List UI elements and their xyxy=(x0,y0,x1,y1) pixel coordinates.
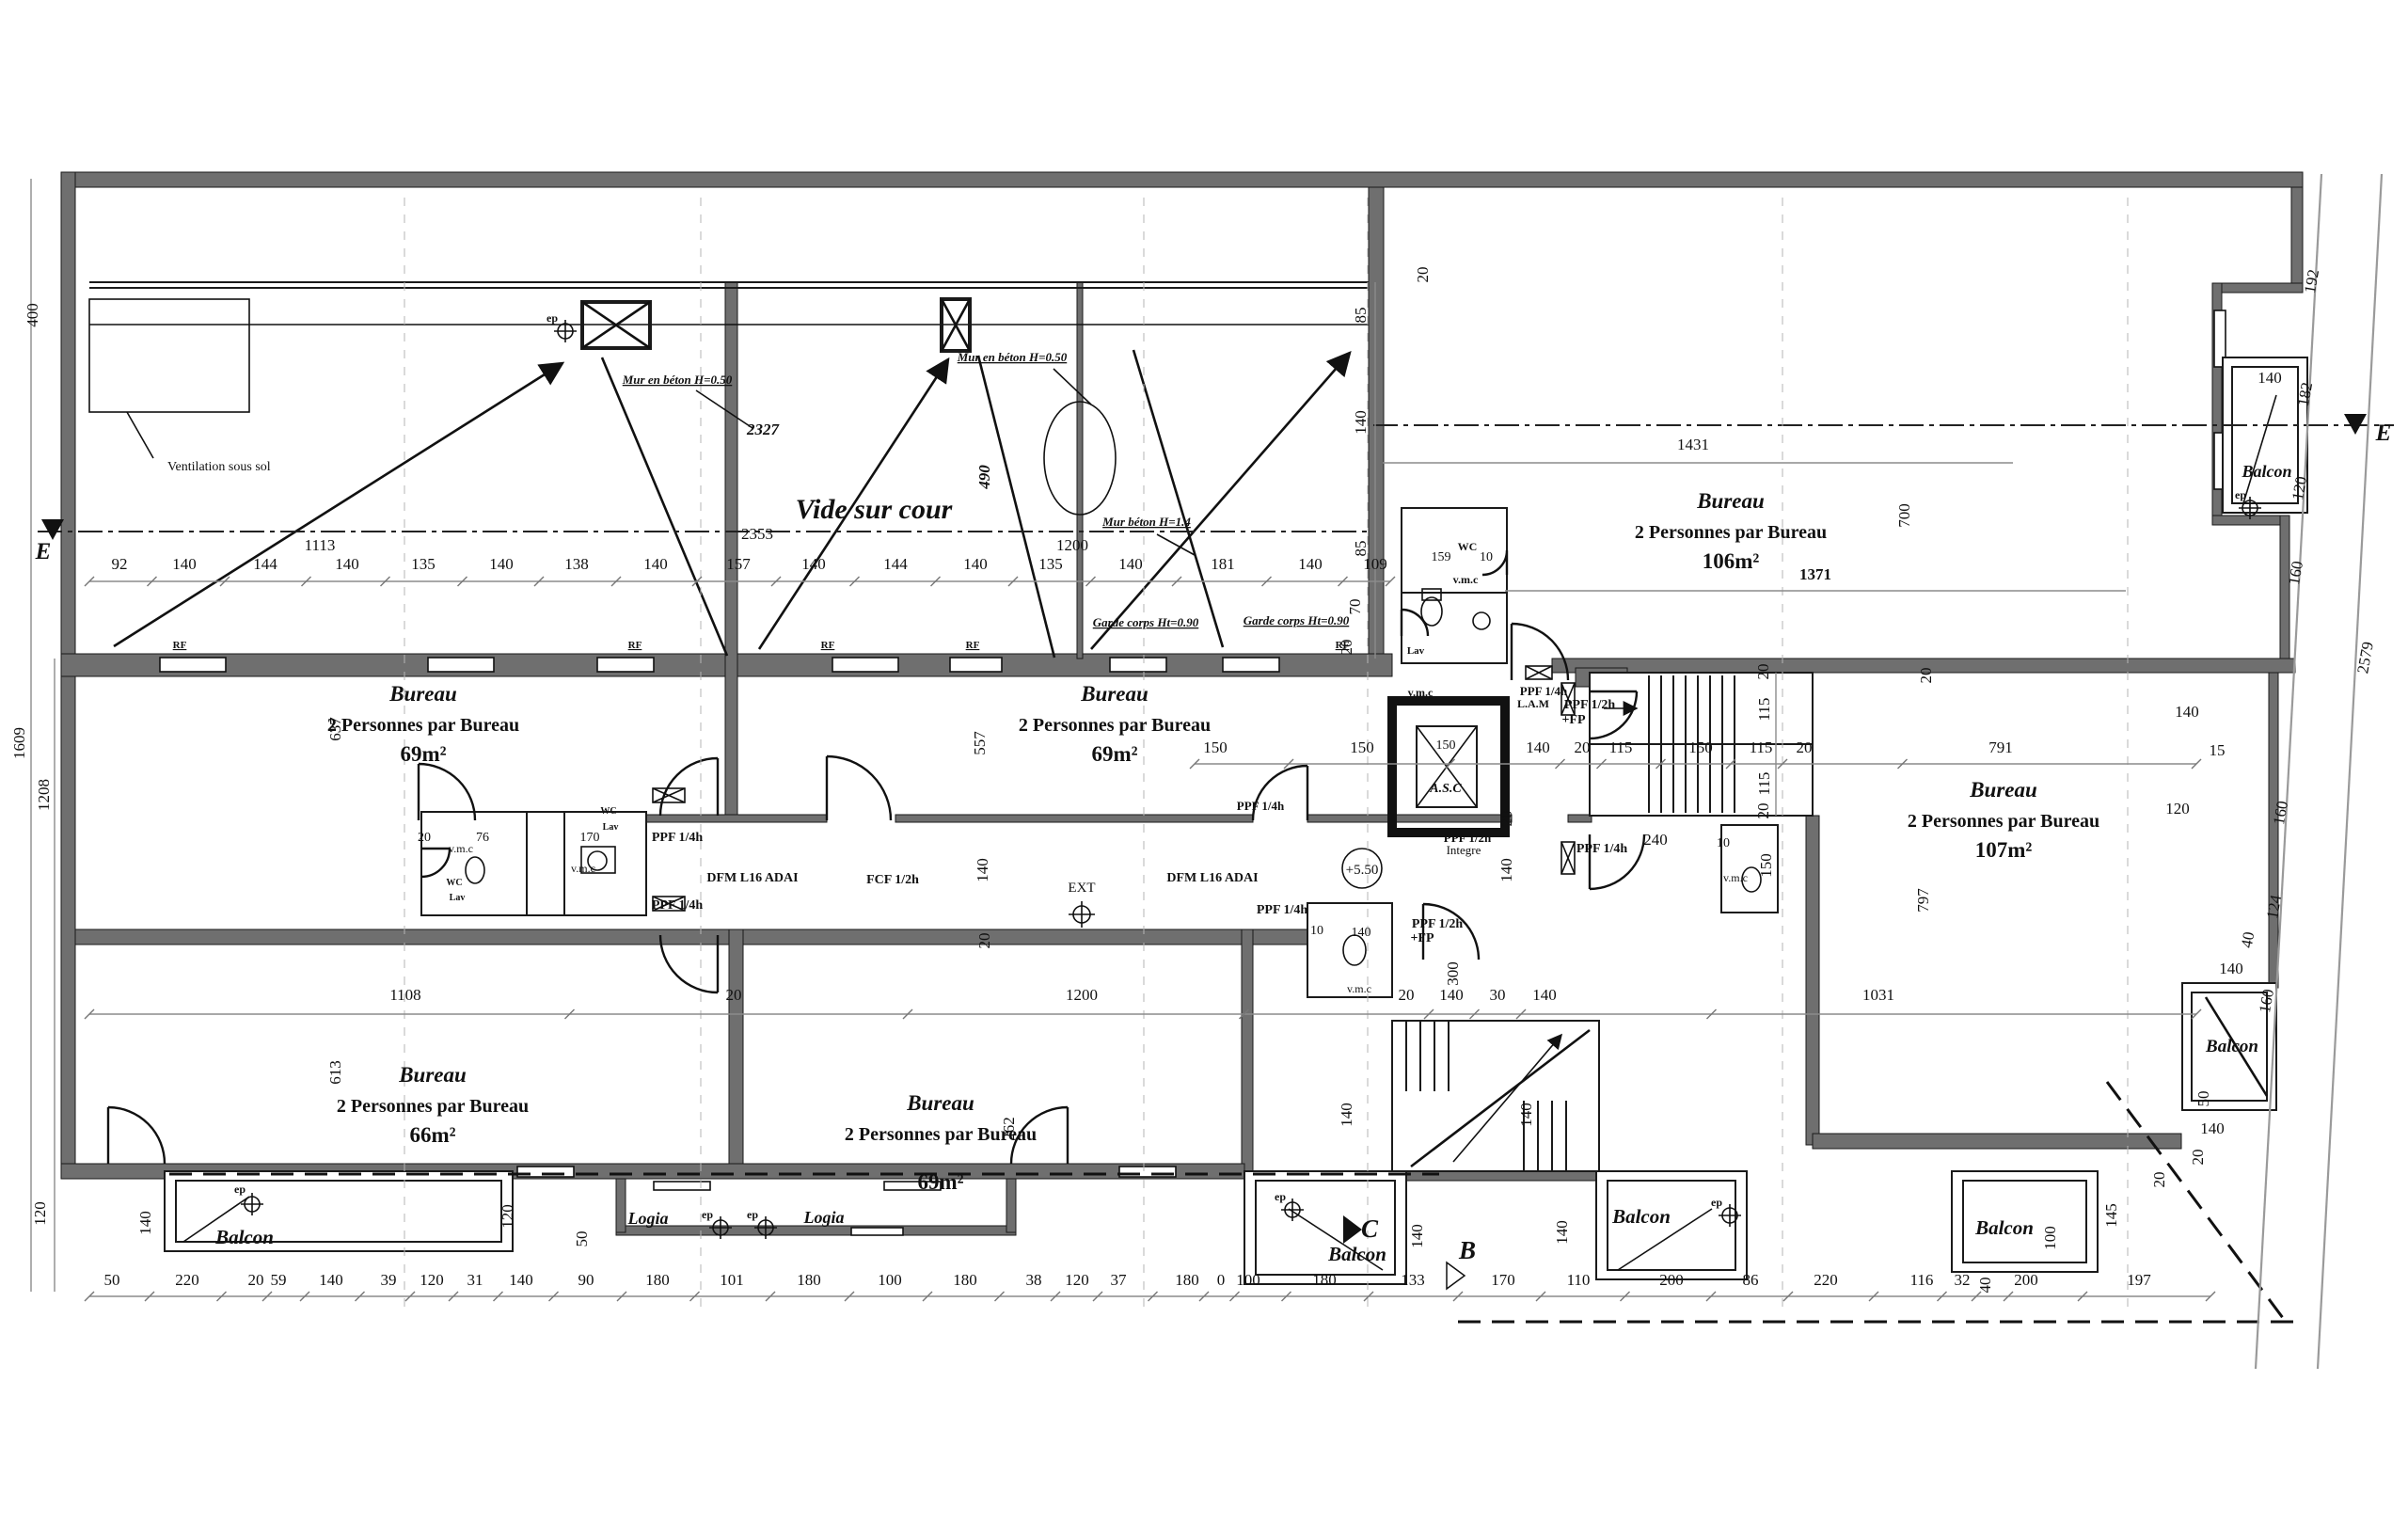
annotation: PPF 1/2h xyxy=(1412,917,1464,931)
dim-value: 700 xyxy=(1895,503,1913,528)
dim-value: 76 xyxy=(476,831,489,845)
annotation: RF xyxy=(966,640,980,651)
dim-value: 140 xyxy=(335,555,359,573)
dim-value: 92 xyxy=(112,555,128,573)
annotation: Lav xyxy=(603,822,619,833)
annotation: E xyxy=(2375,421,2392,446)
dim-value: 133 xyxy=(1401,1271,1425,1289)
dim-value: 159 xyxy=(1432,550,1451,564)
annotation: Mur béton H=1.4 xyxy=(1101,515,1191,529)
annotation: v.m.c xyxy=(449,842,473,855)
annotation: ep xyxy=(1275,1190,1286,1203)
dim-value: 140 xyxy=(963,555,988,573)
bureau-bottom-left-label: 2 Personnes par Bureau xyxy=(337,1096,529,1117)
dim-value: 10 xyxy=(1480,550,1493,564)
top-window-chain: 9214014414013514013814015714014414013514… xyxy=(85,555,1395,586)
annotation: WC xyxy=(1458,540,1478,553)
annotation: Balcon xyxy=(1974,1216,2034,1239)
dim-value: 144 xyxy=(883,555,908,573)
dim-value: 85 xyxy=(1352,541,1370,557)
dim-value: 31 xyxy=(467,1271,483,1289)
dim-value: 240 xyxy=(1643,831,1668,849)
dim-value: 39 xyxy=(381,1271,397,1289)
dim-value: 140 xyxy=(509,1271,533,1289)
dim-value: 20 xyxy=(726,986,742,1004)
dim-value: 400 xyxy=(24,303,41,327)
bureau-top-left-label: 2 Personnes par Bureau xyxy=(327,715,519,736)
dim-value: 100 xyxy=(2041,1226,2059,1250)
dim-value: 1371 xyxy=(1799,565,1831,583)
dim-value: 150 xyxy=(1350,738,1374,756)
dim-value: 120 xyxy=(2165,800,2190,818)
dim-value: 791 xyxy=(1988,738,2013,756)
dim-value: 150 xyxy=(1688,738,1713,756)
annotation: C xyxy=(1361,1215,1379,1243)
dim-value: 70 xyxy=(1346,599,1364,615)
annotation: Integre xyxy=(1447,843,1481,857)
annotation: ep xyxy=(2235,488,2246,501)
annotation: Balcon xyxy=(1327,1243,1386,1265)
dim-value: 140 xyxy=(801,555,826,573)
dim-value: 140 xyxy=(2200,1119,2225,1137)
annotation: E xyxy=(35,539,52,564)
annotation: Logia xyxy=(803,1208,845,1227)
dim-value: 120 xyxy=(420,1271,444,1289)
dim-value: 20 xyxy=(248,1271,264,1289)
dim-value: 115 xyxy=(1755,772,1773,796)
dim-value: 32 xyxy=(1955,1271,1971,1289)
annotation: DFM L16 ADAI xyxy=(706,871,798,885)
bureau-top-right-label: Bureau xyxy=(1696,489,1765,513)
annotation: L.A.M xyxy=(1517,697,1549,710)
annotation: PPF 1/2h xyxy=(1564,698,1616,712)
dim-value: 135 xyxy=(1038,555,1063,573)
dim-value: 50 xyxy=(573,1231,591,1247)
staircase-lower xyxy=(1392,1021,1599,1171)
bureau-top-left: Bureau2 Personnes par Bureau69m² xyxy=(327,682,519,766)
dim-value: 37 xyxy=(1111,1271,1128,1289)
dim-value: 160 xyxy=(2285,560,2306,586)
dim-value: 182 xyxy=(2294,381,2316,407)
bureau-bottom-left-label: Bureau xyxy=(398,1063,467,1087)
bureau-bottom-left: Bureau2 Personnes par Bureau66m² xyxy=(337,1063,529,1147)
annotation: +FP xyxy=(1561,713,1586,727)
dim-value: 490 xyxy=(975,465,993,490)
annotation: v.m.c xyxy=(1453,573,1479,586)
dim-value: 86 xyxy=(1743,1271,1759,1289)
dim-value: 10 xyxy=(1717,836,1730,850)
dim-value: 1031 xyxy=(1862,986,1894,1004)
bureau-bottom-mid-label: 69m² xyxy=(917,1170,963,1194)
annotation: Lav xyxy=(450,893,466,903)
annotation: Balcon xyxy=(214,1226,274,1248)
dim-value: 157 xyxy=(726,555,751,573)
dim-value: 140 xyxy=(1497,858,1515,882)
annotation: PPF 1/4h xyxy=(1576,842,1628,856)
dim-value: 40 xyxy=(1976,1278,1994,1294)
annotation: ep xyxy=(234,1183,246,1196)
dim-value: 2353 xyxy=(741,525,773,543)
dim-value: 30 xyxy=(1490,986,1506,1004)
bureau-right-label: 2 Personnes par Bureau xyxy=(1908,811,2099,832)
annotation: +FP xyxy=(1410,931,1434,945)
bureau-right-label: 107m² xyxy=(1975,838,2033,862)
dim-value: 10 xyxy=(1310,924,1323,938)
dim-value: 110 xyxy=(1567,1271,1591,1289)
annotation: Garde corps Ht=0.90 xyxy=(1244,613,1350,627)
annotation: Balcon xyxy=(2205,1037,2258,1056)
dim-value: 15 xyxy=(2210,741,2226,759)
dim-value: 181 xyxy=(1211,555,1235,573)
dim-value: 20 xyxy=(2150,1172,2168,1188)
dim-value: 150 xyxy=(1757,853,1775,878)
dim-value: 109 xyxy=(1363,555,1387,573)
annotation: Garde corps Ht=0.90 xyxy=(1093,615,1199,629)
annotation: Lav xyxy=(1407,645,1425,657)
bureau-top-middle-label: 2 Personnes par Bureau xyxy=(1019,715,1211,736)
dim-value: 180 xyxy=(1312,1271,1337,1289)
dim-value: 135 xyxy=(411,555,436,573)
annotation: +5.50 xyxy=(1346,863,1379,878)
dim-value: 20 xyxy=(418,831,431,845)
bureau-top-left-label: Bureau xyxy=(388,682,457,706)
annotation: Logia xyxy=(627,1209,669,1228)
annotation: RF xyxy=(821,640,835,651)
annotation: FCF 1/2h xyxy=(866,873,919,887)
bureau-top-middle-label: Bureau xyxy=(1080,682,1149,706)
annotation-labels: Ventilation sous solVide sur courMur en … xyxy=(35,311,2392,1265)
dim-value: 20 xyxy=(1497,811,1515,827)
annotation: WC xyxy=(600,806,616,817)
dim-value: 20 xyxy=(1399,986,1415,1004)
dim-value: 100 xyxy=(878,1271,902,1289)
annotation: Mur en béton H=0.50 xyxy=(957,350,1068,364)
bureau-right-label: Bureau xyxy=(1969,778,2037,802)
dim-value: 613 xyxy=(326,1060,344,1085)
annotation: DFM L16 ADAI xyxy=(1166,871,1258,885)
balcony-c xyxy=(1244,1171,1406,1284)
floor-plan-page: 9214014414013514013814015714014414013514… xyxy=(0,0,2408,1540)
dim-value: 1113 xyxy=(305,536,336,554)
dim-value: 1609 xyxy=(10,727,28,759)
dim-value: 20 xyxy=(2189,1150,2207,1166)
dim-value: 797 xyxy=(1914,888,1932,913)
dim-value: 0 xyxy=(1217,1271,1226,1289)
dim-value: 2327 xyxy=(746,421,781,438)
dim-value: 145 xyxy=(2102,1203,2120,1228)
dim-value: 140 xyxy=(489,555,514,573)
dim-value: 200 xyxy=(2014,1271,2038,1289)
bureau-top-right-label: 106m² xyxy=(1703,549,1760,573)
floor-plan-drawing: 9214014414013514013814015714014414013514… xyxy=(0,0,2408,1540)
annotation: RF xyxy=(628,640,642,651)
dim-value: 140 xyxy=(1338,1103,1355,1127)
dim-value: 116 xyxy=(1910,1271,1934,1289)
dim-value: 138 xyxy=(564,555,589,573)
dim-value: 1431 xyxy=(1677,436,1709,453)
dim-value: 140 xyxy=(1526,738,1550,756)
dim-value: 140 xyxy=(1408,1224,1426,1248)
bureau-top-middle-label: 69m² xyxy=(1091,742,1137,766)
annotation: RF xyxy=(173,640,187,651)
dim-value: 140 xyxy=(1517,1103,1535,1127)
axis-marker-e-left xyxy=(41,519,64,540)
dim-value: 120 xyxy=(1065,1271,1089,1289)
annotation: Balcon xyxy=(1611,1205,1671,1228)
dim-value: 59 xyxy=(271,1271,287,1289)
dim-value: 1200 xyxy=(1066,986,1098,1004)
dim-value: 140 xyxy=(172,555,197,573)
dim-value: 140 xyxy=(2175,703,2199,721)
dim-value: 38 xyxy=(1026,1271,1042,1289)
annotation: v.m.c xyxy=(571,862,595,875)
dim-value: 20 xyxy=(1797,738,1813,756)
dim-value: 140 xyxy=(1532,986,1557,1004)
dim-value: 150 xyxy=(1203,738,1228,756)
bureau-top-right: Bureau2 Personnes par Bureau106m² xyxy=(1635,489,1827,573)
dim-value: 115 xyxy=(1755,698,1773,722)
bureau-bottom-mid-label: 2 Personnes par Bureau xyxy=(845,1124,1037,1145)
bureau-top-right-label: 2 Personnes par Bureau xyxy=(1635,522,1827,543)
dim-value: 101 xyxy=(720,1271,744,1289)
dim-value: 140 xyxy=(1553,1220,1571,1245)
dim-value: 220 xyxy=(175,1271,199,1289)
bureau-top-left-label: 69m² xyxy=(400,742,446,766)
dim-value: 180 xyxy=(797,1271,821,1289)
dim-value: 20 xyxy=(1575,738,1591,756)
bureau-bottom-left-label: 66m² xyxy=(409,1123,455,1147)
bureau-bottom-mid-label: Bureau xyxy=(906,1091,974,1115)
dim-value: 20 xyxy=(975,933,993,949)
dim-value: 140 xyxy=(1352,410,1370,435)
dim-value: 160 xyxy=(2270,800,2291,826)
dim-value: 20 xyxy=(1917,668,1935,684)
dim-value: 50 xyxy=(2194,1091,2212,1107)
axis-lines xyxy=(38,414,2394,1289)
bureau-top-middle: Bureau2 Personnes par Bureau69m² xyxy=(1019,682,1211,766)
dim-value: 20 xyxy=(1414,267,1432,283)
dim-value: 124 xyxy=(2263,893,2285,920)
dim-value: 170 xyxy=(1491,1271,1515,1289)
annotation: Vide sur cour xyxy=(796,494,953,525)
dim-value: 140 xyxy=(319,1271,343,1289)
dim-value: 180 xyxy=(953,1271,977,1289)
dim-value: 115 xyxy=(1750,738,1773,756)
dim-value: 140 xyxy=(1352,926,1371,940)
dim-value: 300 xyxy=(1444,961,1462,986)
dim-value: 197 xyxy=(2127,1271,2151,1289)
core-chain: 1501501402011515011520791 xyxy=(1190,738,2201,769)
dim-value: 140 xyxy=(136,1211,154,1235)
dim-value: 150 xyxy=(1436,738,1456,753)
annotation: ep xyxy=(747,1208,758,1221)
dim-value: 20 xyxy=(1754,803,1772,819)
annotation: PPF 1/4h xyxy=(1520,684,1568,698)
dim-value: 1200 xyxy=(1056,536,1088,554)
dim-value: 140 xyxy=(2257,369,2282,387)
dim-value: 120 xyxy=(31,1201,49,1226)
annotation: ep xyxy=(1711,1196,1722,1209)
annotation: A.S.C xyxy=(1429,782,1462,796)
dim-value: 180 xyxy=(1175,1271,1199,1289)
dim-value: 170 xyxy=(580,831,600,845)
dim-value: 20 xyxy=(1754,664,1772,680)
annotation: Balcon xyxy=(2241,462,2291,481)
annotation: v.m.c xyxy=(1347,982,1371,995)
dim-value: 140 xyxy=(2219,960,2243,977)
dim-value: 100 xyxy=(1236,1271,1260,1289)
dim-value: 115 xyxy=(1609,738,1633,756)
dim-value: 192 xyxy=(2301,268,2322,294)
annotation: ep xyxy=(547,311,558,325)
annotation: Mur en béton H=0.50 xyxy=(622,373,733,387)
dim-value: 1208 xyxy=(35,779,53,811)
annotation: ep xyxy=(702,1208,713,1221)
dim-value: 140 xyxy=(1118,555,1143,573)
dim-value: 120 xyxy=(499,1204,516,1229)
dim-value: 140 xyxy=(1439,986,1464,1004)
elevator-shaft xyxy=(1392,701,1505,833)
annotation: PPF 1/4h xyxy=(652,831,704,845)
annotation: v.m.c xyxy=(1408,686,1434,699)
annotation: RF xyxy=(1336,640,1350,651)
dim-value: 40 xyxy=(2238,930,2258,949)
dim-value: 50 xyxy=(104,1271,120,1289)
dim-value: 1108 xyxy=(389,986,420,1004)
dim-value: 90 xyxy=(578,1271,594,1289)
annotation: WC xyxy=(446,878,462,888)
annotation: PPF 1/4h xyxy=(1237,799,1285,813)
dim-value: 144 xyxy=(253,555,277,573)
section-marker-b xyxy=(1447,1262,1465,1289)
dim-value: 140 xyxy=(974,858,991,882)
mid-chain: 110820120020140301401031 xyxy=(85,986,2201,1019)
annotation: B xyxy=(1458,1236,1476,1264)
dim-value: 200 xyxy=(1659,1271,1684,1289)
annotation: EXT xyxy=(1068,881,1095,896)
dim-value: 220 xyxy=(1814,1271,1838,1289)
annotation: PPF 1/4h xyxy=(1257,903,1308,917)
annotation: PPF 1/4h xyxy=(652,898,704,913)
annotation: Ventilation sous sol xyxy=(167,460,271,474)
dim-value: 140 xyxy=(1298,555,1323,573)
bureau-right: Bureau2 Personnes par Bureau107m² xyxy=(1908,778,2099,862)
dim-value: 557 xyxy=(971,731,989,755)
annotation: v.m.c xyxy=(1723,871,1748,884)
dim-value: 180 xyxy=(645,1271,670,1289)
dim-value: 140 xyxy=(643,555,668,573)
dim-value: 85 xyxy=(1352,308,1370,324)
